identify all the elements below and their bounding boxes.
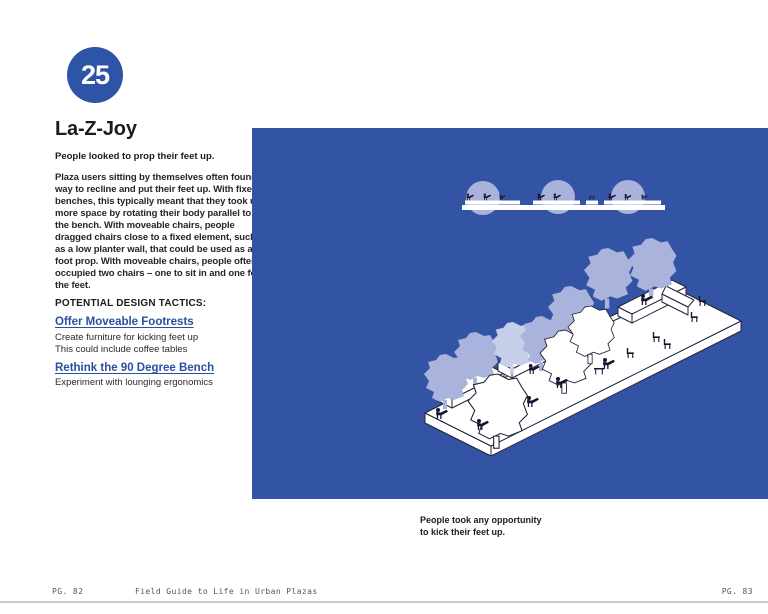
page-number-right: PG. 83 — [722, 587, 753, 596]
lede-text: People looked to prop their feet up. — [55, 151, 214, 162]
tactics-heading: POTENTIAL DESIGN TACTICS: — [55, 298, 206, 309]
ground-bar — [462, 205, 665, 210]
figure-caption: People took any opportunity to kick thei… — [420, 514, 542, 538]
tactic-description-2: Experiment with lounging ergonomics — [55, 377, 213, 389]
tactic-description-1-line2: This could include coffee tables — [55, 344, 198, 356]
tactic-description-2-line1: Experiment with lounging ergonomics — [55, 377, 213, 389]
figure-caption-line2: to kick their feet up. — [420, 526, 542, 538]
bench-segment-2 — [533, 201, 580, 205]
bench-segment-1 — [465, 201, 520, 205]
tactic-link-moveable-footrests[interactable]: Offer Moveable Footrests — [55, 316, 194, 328]
bottom-rule — [0, 601, 768, 603]
tactic-description-1-line1: Create furniture for kicking feet up — [55, 332, 198, 344]
chapter-number-badge: 25 — [67, 47, 123, 103]
axonometric-plaza — [424, 238, 741, 456]
section-elevation-diagram — [462, 180, 665, 215]
tactic-description-1: Create furniture for kicking feet up Thi… — [55, 332, 198, 356]
figure-caption-line1: People took any opportunity — [420, 514, 542, 526]
book-title: Field Guide to Life in Urban Plazas — [135, 587, 318, 596]
bench-segment-4 — [604, 201, 661, 205]
bench-segment-3 — [586, 201, 598, 205]
chapter-number: 25 — [81, 60, 109, 91]
figure-panel — [252, 128, 768, 499]
page-number-left: PG. 82 — [52, 587, 83, 596]
plaza-illustration — [252, 128, 768, 499]
tactic-link-rethink-bench[interactable]: Rethink the 90 Degree Bench — [55, 362, 214, 374]
page-title: La-Z-Joy — [55, 118, 137, 141]
body-paragraph: Plaza users sitting by themselves often … — [55, 172, 267, 292]
